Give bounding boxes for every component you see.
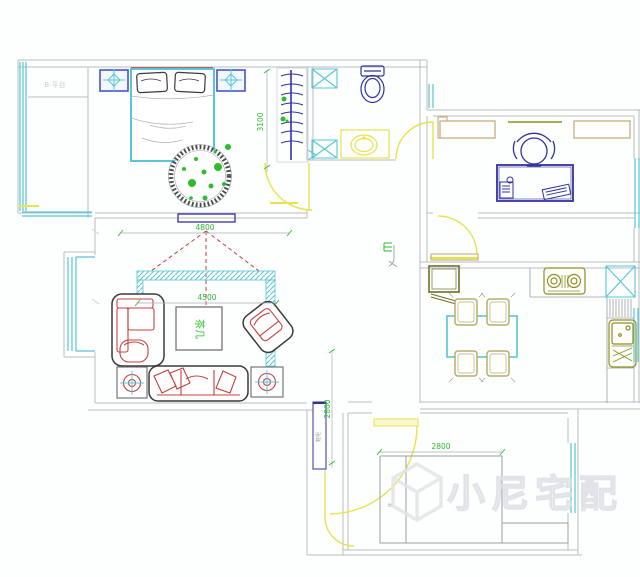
study <box>440 121 630 201</box>
dining-chair <box>487 299 509 325</box>
balcony-corner-window <box>22 212 92 216</box>
vanity-sink <box>341 130 389 158</box>
bedroom1 <box>100 68 308 208</box>
bedside-bench <box>502 523 568 543</box>
shoe-cabinet-label: 鞋柜 <box>315 432 322 442</box>
floor-plan-canvas: 茶几 <box>0 0 640 577</box>
coffee-table-label: 茶几 <box>193 319 206 339</box>
kitchen-sink-icon <box>609 320 636 367</box>
study-door <box>438 216 477 255</box>
shaft-box-icon <box>312 140 337 158</box>
shaft-box-icon <box>606 266 635 297</box>
dim-bedroom2: 2800 <box>431 442 450 451</box>
dining-tv-icon <box>429 266 459 304</box>
windows <box>20 62 639 513</box>
chaise-sofa <box>112 294 164 366</box>
study-cabinets <box>440 121 630 138</box>
study-window <box>635 158 639 228</box>
end-table-lamp <box>117 367 147 398</box>
bedroom2-door-leaf <box>374 419 418 426</box>
watermark-cube-icon <box>393 464 441 520</box>
living-bay-window <box>68 257 95 351</box>
living-room: 茶几 <box>112 214 297 401</box>
dim-entry: 2800 <box>323 399 332 418</box>
dining-chairs <box>455 299 509 376</box>
hanger-icons <box>281 74 303 143</box>
hall-switch-symbol <box>384 243 397 267</box>
office-chair <box>513 133 554 166</box>
dining-chair <box>455 299 477 325</box>
toilet-icon <box>361 66 384 103</box>
keyboard-icon <box>542 184 570 199</box>
counter-hatch <box>610 299 631 317</box>
accent-chair <box>239 298 296 356</box>
dining-kitchen <box>429 266 636 382</box>
wardrobe-plant-icon <box>281 97 289 123</box>
shaft-boxes <box>312 69 635 297</box>
watermark-text: 小尼宅配 <box>447 472 623 516</box>
dining-chair <box>487 351 509 376</box>
bathroom-window <box>429 84 433 108</box>
shaft-box-icon <box>312 69 337 88</box>
entry-door <box>325 469 354 546</box>
round-rug <box>169 144 232 208</box>
dim-living-sofa: 4500 <box>197 293 216 302</box>
phone-icon <box>500 177 513 198</box>
balcony-window <box>20 62 26 211</box>
gas-stove-icon <box>544 268 585 294</box>
wardrobe <box>277 68 308 162</box>
dining-chair <box>455 351 477 376</box>
dim-living-top: 4800 <box>195 223 214 232</box>
watermark: 小尼宅配 <box>393 464 623 520</box>
three-seat-sofa <box>149 366 248 401</box>
desk <box>497 165 573 201</box>
end-table-lamp <box>251 367 283 397</box>
balcony-label: B-平台 <box>44 80 65 89</box>
bathroom <box>341 66 389 158</box>
dim-bedroom-depth: 3100 <box>256 112 265 131</box>
coffee-table: 茶几 <box>176 307 222 350</box>
floor-plan: 茶几 <box>0 0 640 577</box>
